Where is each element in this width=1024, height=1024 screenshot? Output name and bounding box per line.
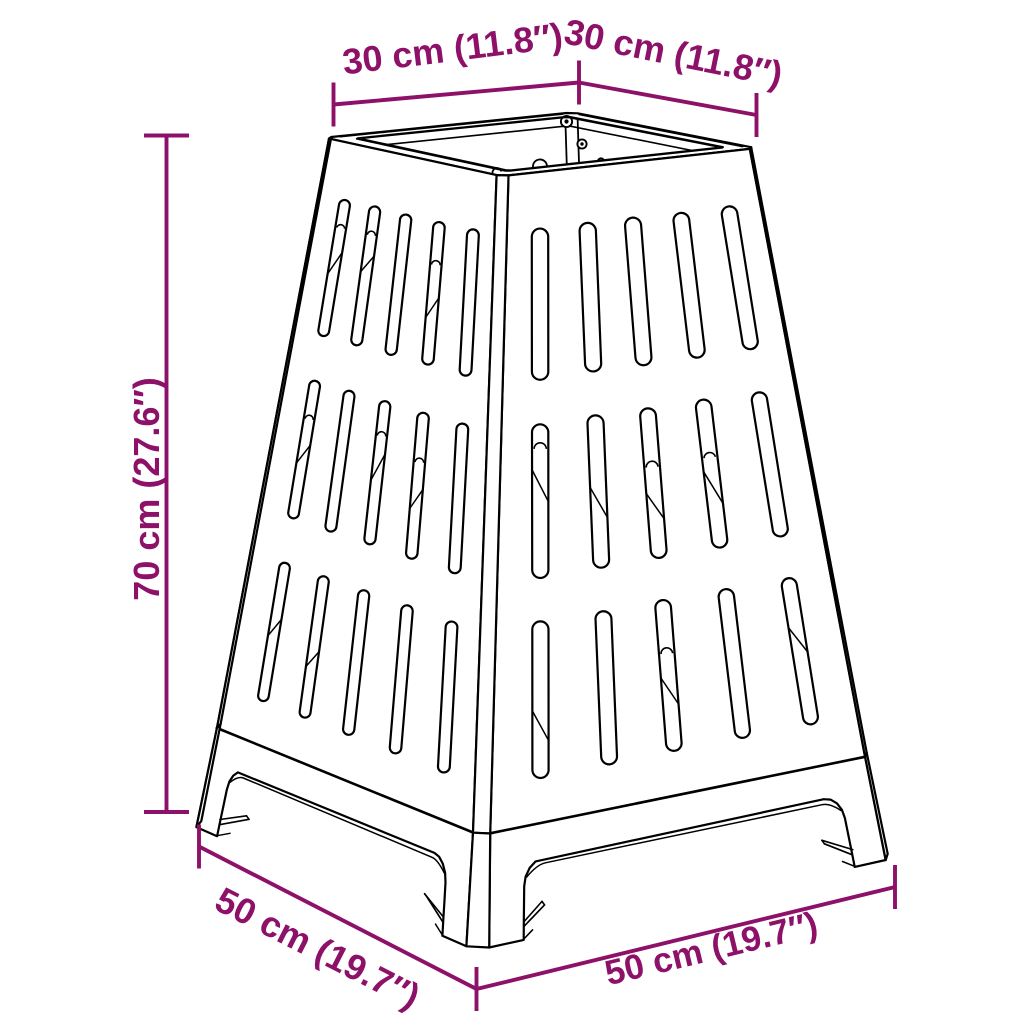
svg-text:70 cm (27.6″): 70 cm (27.6″) [126, 377, 167, 600]
